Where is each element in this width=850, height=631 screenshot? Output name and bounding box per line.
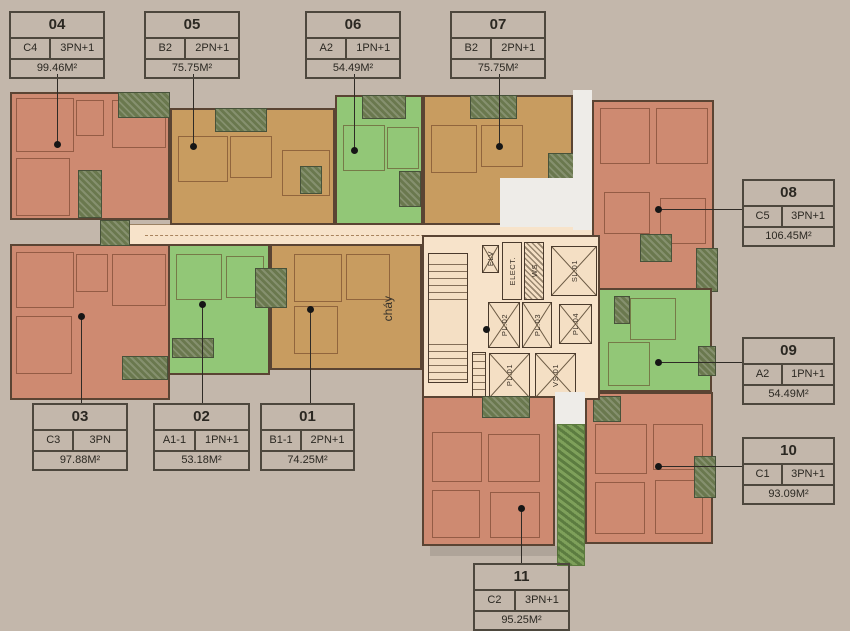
room-outline (630, 298, 676, 340)
leader-line (499, 74, 500, 146)
unit-09-region[interactable] (598, 288, 712, 392)
label-unit-type: B2 (452, 39, 492, 58)
service-shaft (399, 171, 421, 207)
room-outline (294, 254, 342, 302)
label-unit-area: 99.46M² (11, 60, 103, 77)
unit-09-label[interactable]: 09 A2 1PN+1 54.49M² (742, 337, 835, 405)
leader-line (521, 510, 522, 563)
label-unit-area: 97.88M² (34, 452, 126, 469)
label-unit-area: 106.45M² (744, 228, 833, 245)
label-unit-rooms: 1PN+1 (347, 39, 399, 58)
balcony (470, 95, 517, 119)
room-outline (16, 158, 70, 216)
label-unit-number: 11 (475, 565, 568, 591)
callout-dot (655, 463, 662, 470)
unit-07-label[interactable]: 07 B2 2PN+1 75.75M² (450, 11, 546, 79)
room-outline (178, 136, 228, 182)
balcony (78, 170, 102, 218)
room-outline (490, 492, 540, 538)
unit-02-region[interactable] (168, 244, 270, 375)
leader-line (57, 74, 58, 144)
unit-10-region[interactable] (585, 392, 713, 544)
unit-01-label[interactable]: 01 B1-1 2PN+1 74.25M² (260, 403, 355, 471)
room-outline (656, 108, 708, 164)
label-unit-area: 95.25M² (475, 612, 568, 629)
label-unit-area: 93.09M² (744, 486, 833, 503)
label-unit-number: 03 (34, 405, 126, 431)
sl01-label: SL.01 (570, 260, 579, 282)
terrace-shadow (430, 546, 560, 556)
service-shaft (614, 296, 630, 324)
room-outline (432, 432, 482, 482)
room-outline (76, 254, 108, 292)
unit-11-label[interactable]: 11 C2 3PN+1 95.25M² (473, 563, 570, 631)
leader-line (202, 306, 203, 403)
callout-dot (190, 143, 197, 150)
balcony (696, 248, 718, 292)
label-unit-area: 75.75M² (452, 60, 544, 77)
label-unit-type: A2 (307, 39, 347, 58)
callout-dot (655, 359, 662, 366)
ws-label: WS (530, 264, 539, 277)
balcony (255, 268, 287, 308)
label-unit-type: A1-1 (155, 431, 196, 450)
pl01-label: PL.01 (505, 364, 514, 386)
label-unit-type: A2 (744, 365, 783, 384)
room-outline (387, 127, 419, 169)
label-unit-rooms: 1PN+1 (196, 431, 248, 450)
callout-dot (199, 301, 206, 308)
staircase-small (472, 352, 486, 398)
label-unit-rooms: 3PN+1 (783, 207, 833, 226)
unit-10-label[interactable]: 10 C1 3PN+1 93.09M² (742, 437, 835, 505)
core-reference-dot (483, 326, 490, 333)
label-unit-area: 75.75M² (146, 60, 238, 77)
leader-line (81, 318, 82, 403)
leader-line (660, 209, 742, 210)
label-unit-type: B2 (146, 39, 186, 58)
room-outline (604, 192, 650, 234)
light-gap-strip (573, 90, 592, 230)
unit-03-region[interactable] (10, 244, 170, 400)
leader-line (660, 362, 742, 363)
leader-line (660, 466, 742, 467)
room-outline (230, 136, 272, 178)
balcony (362, 95, 406, 119)
room-outline (600, 108, 650, 164)
label-unit-type: C1 (744, 465, 783, 484)
unit-06-region[interactable] (335, 95, 423, 225)
room-outline (16, 252, 74, 308)
room-outline (16, 316, 72, 374)
callout-dot (307, 306, 314, 313)
balcony (215, 108, 267, 132)
label-unit-rooms: 3PN+1 (51, 39, 103, 58)
room-outline (112, 254, 166, 306)
room-outline (16, 98, 74, 152)
label-unit-number: 10 (744, 439, 833, 465)
electrical-room: ELECT. (502, 242, 522, 300)
label-unit-type: C4 (11, 39, 51, 58)
room-outline (432, 490, 480, 538)
room-outline (488, 434, 540, 482)
balcony (172, 338, 214, 358)
unit-04-region[interactable] (10, 92, 170, 220)
unit-03-label[interactable]: 03 C3 3PN 97.88M² (32, 403, 128, 471)
light-gap-strip (555, 392, 585, 424)
unit-06-label[interactable]: 06 A2 1PN+1 54.49M² (305, 11, 401, 79)
label-unit-rooms: 2PN+1 (186, 39, 238, 58)
unit-02-label[interactable]: 02 A1-1 1PN+1 53.18M² (153, 403, 250, 471)
vs01-label: VS.01 (551, 364, 560, 387)
elevator-shaft: ELV (482, 245, 499, 273)
unit-01-region[interactable] (270, 244, 422, 370)
service-shaft (640, 234, 672, 262)
shaft-sl01: SL.01 (551, 246, 597, 296)
label-unit-number: 09 (744, 339, 833, 365)
label-unit-number: 06 (307, 13, 399, 39)
callout-dot (655, 206, 662, 213)
label-unit-number: 04 (11, 13, 103, 39)
unit-05-region[interactable] (170, 108, 335, 225)
unit-05-label[interactable]: 05 B2 2PN+1 75.75M² (144, 11, 240, 79)
balcony (122, 356, 168, 380)
room-outline (431, 125, 477, 173)
balcony (118, 92, 170, 118)
label-unit-rooms: 2PN+1 (302, 431, 353, 450)
service-core: ELV ELECT. WS SL.01 PL.02 PL.03 PL.04 PL… (422, 235, 600, 400)
shaft-pl04: PL.04 (559, 304, 592, 344)
callout-dot (496, 143, 503, 150)
ws-shaft: WS (524, 242, 544, 300)
balcony (100, 220, 130, 246)
label-unit-rooms: 1PN+1 (783, 365, 833, 384)
label-unit-rooms: 3PN+1 (783, 465, 833, 484)
label-unit-number: 05 (146, 13, 238, 39)
unit-08-label[interactable]: 08 C5 3PN+1 106.45M² (742, 179, 835, 247)
shaft-pl02: PL.02 (488, 302, 520, 348)
elevator-label: ELV (486, 251, 495, 266)
pl04-label: PL.04 (571, 313, 580, 335)
label-unit-area: 54.49M² (744, 386, 833, 403)
label-unit-area: 74.25M² (262, 452, 353, 469)
room-outline (608, 342, 650, 386)
label-unit-rooms: 3PN (74, 431, 126, 450)
balcony (482, 396, 530, 418)
label-unit-type: C3 (34, 431, 74, 450)
room-outline (343, 125, 385, 171)
balcony (694, 456, 716, 498)
leader-line (193, 74, 194, 146)
unit-11-region[interactable] (422, 396, 555, 546)
stair-treads (429, 338, 467, 380)
label-unit-type: C2 (475, 591, 516, 610)
label-unit-number: 07 (452, 13, 544, 39)
callout-dot (351, 147, 358, 154)
unit-08-region[interactable] (592, 100, 714, 290)
pl02-label: PL.02 (500, 314, 509, 336)
service-shaft (300, 166, 322, 194)
room-outline (595, 424, 647, 474)
label-unit-number: 02 (155, 405, 248, 431)
label-unit-rooms: 3PN+1 (516, 591, 568, 610)
callout-dot (518, 505, 525, 512)
callout-dot (54, 141, 61, 148)
label-unit-number: 08 (744, 181, 833, 207)
stair-treads (429, 258, 467, 300)
label-unit-number: 01 (262, 405, 353, 431)
label-unit-area: 53.18M² (155, 452, 248, 469)
staircase (428, 253, 468, 383)
balcony (698, 346, 716, 376)
electrical-label: ELECT. (508, 257, 517, 285)
room-outline (176, 254, 222, 300)
shaft-pl01: PL.01 (489, 353, 530, 398)
label-unit-type: B1-1 (262, 431, 302, 450)
unit-04-label[interactable]: 04 C4 3PN+1 99.46M² (9, 11, 105, 79)
pl03-label: PL.03 (533, 314, 542, 336)
shaft-pl03: PL.03 (522, 302, 552, 348)
fire-escape-text: cháy (381, 296, 395, 321)
label-unit-rooms: 2PN+1 (492, 39, 544, 58)
room-outline (346, 254, 390, 300)
leader-line (310, 311, 311, 403)
leader-line (354, 74, 355, 150)
floor-plan-canvas: ELV ELECT. WS SL.01 PL.02 PL.03 PL.04 PL… (0, 0, 850, 631)
room-outline (76, 100, 104, 136)
room-outline (595, 482, 645, 534)
garden-strip (557, 424, 585, 566)
label-unit-area: 54.49M² (307, 60, 399, 77)
callout-dot (78, 313, 85, 320)
label-unit-type: C5 (744, 207, 783, 226)
room-outline (294, 306, 338, 354)
